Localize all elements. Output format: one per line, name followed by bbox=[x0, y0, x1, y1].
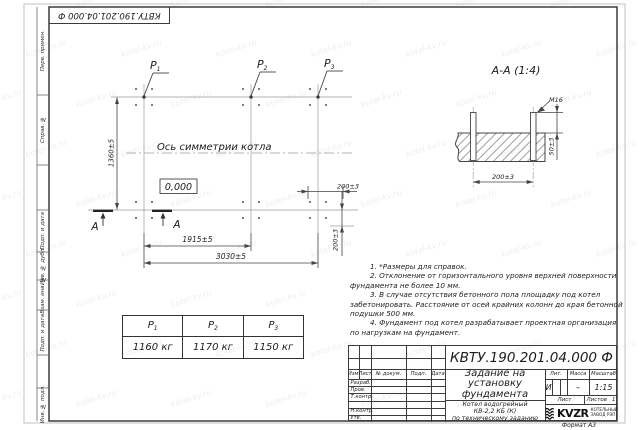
col-header-list: Лист bbox=[359, 369, 371, 379]
section-cut-letter-a-2: А bbox=[172, 219, 180, 231]
plan-dimensions bbox=[115, 98, 357, 269]
anchor-bolt-dots bbox=[135, 88, 327, 219]
dim-1915: 1915±5 bbox=[182, 235, 212, 244]
drawing-sheet: kotel-kv.rukotel-kv.rukotel-kv.rukotel-k… bbox=[0, 0, 644, 430]
logo-caption: КОТЕЛЬНЫЙ ЗАВОД РЭП bbox=[591, 408, 618, 418]
format-label: Формат А3 bbox=[548, 422, 610, 429]
sheets-label: Листов bbox=[586, 397, 607, 403]
product-line: КВ-2,2 КБ (К) bbox=[474, 408, 517, 415]
title-block: КВТУ.190.201.04.000 Ф Изм. Лист № докум.… bbox=[348, 345, 617, 421]
row-prov: Пров. bbox=[349, 386, 373, 393]
loads-value-p3: 1150 кг bbox=[243, 337, 303, 359]
margin-cell-podp-data-1: Подп. и дата bbox=[37, 210, 49, 252]
loads-value-p1: 1160 кг bbox=[123, 337, 183, 359]
loads-table-value-row: 1160 кг 1170 кг 1150 кг bbox=[123, 337, 304, 359]
col-header-data: Дата bbox=[431, 369, 445, 379]
title-block-product: Котел водогрейный КВ-2,2 КБ (К) по техни… bbox=[445, 400, 545, 422]
title-line: фундамента bbox=[462, 390, 528, 400]
plan-axes bbox=[88, 84, 358, 233]
corner-doc-number: КВТУ.190.201.04.000 Ф bbox=[58, 10, 161, 20]
coil-icon bbox=[545, 406, 555, 421]
note-line: забетонировать. Расстояние от осей крайн… bbox=[350, 300, 616, 309]
section-cut-letter-a-1: А bbox=[90, 221, 98, 233]
dim-200-bolt-spacing: 200±3 bbox=[492, 173, 514, 181]
title-block-title: Задание на установку фундамента bbox=[445, 369, 545, 400]
company-logo: KVZR КОТЕЛЬНЫЙ ЗАВОД РЭП bbox=[545, 404, 618, 422]
dim-1360: 1360±5 bbox=[108, 138, 116, 167]
p3-point-label: P3 bbox=[324, 57, 335, 71]
scale-header: Масштаб bbox=[589, 369, 618, 379]
margin-cell-podp-data-2: Подп. и дата bbox=[37, 310, 49, 355]
lit-value: И bbox=[545, 379, 552, 395]
p1-point-label: P1 bbox=[150, 59, 160, 73]
loads-header-p2: P2 bbox=[183, 316, 243, 337]
mass-header: Масса bbox=[567, 369, 589, 379]
thread-size-label: М16 bbox=[549, 96, 563, 104]
col-header-podp: Подп. bbox=[406, 369, 431, 379]
sheet-label: Лист bbox=[545, 395, 584, 404]
mass-value: – bbox=[567, 379, 589, 395]
margin-cell-sprav-n: Справ. № bbox=[37, 95, 49, 165]
section-title: А-А (1:4) bbox=[491, 64, 541, 77]
corner-stamp: КВТУ.190.201.04.000 Ф bbox=[49, 7, 170, 24]
note-line: по нагрузкам на фундамент. bbox=[350, 328, 616, 337]
col-header-izm: Изм. bbox=[349, 369, 359, 379]
row-nkontr: Н.контр. bbox=[349, 408, 373, 415]
note-line: фундамента не более 10 мм. bbox=[350, 281, 616, 290]
logo-caption-line: ЗАВОД РЭП bbox=[591, 413, 618, 418]
dim-200-vertical: 200±3 bbox=[332, 229, 340, 251]
sheets-cell: Листов 1 bbox=[584, 395, 618, 404]
loads-header-p3: P3 bbox=[243, 316, 303, 337]
loads-table: P1 P2 P3 1160 кг 1170 кг 1150 кг bbox=[122, 315, 304, 359]
logo-text: KVZR bbox=[557, 407, 588, 420]
elevation-label: 0,000 bbox=[165, 182, 192, 193]
symmetry-axis-label: Ось симметрии котла bbox=[157, 142, 272, 153]
note-line: 4. Фундамент под котел разрабатывает про… bbox=[350, 318, 616, 327]
load-point-leaders bbox=[143, 71, 343, 98]
col-header-dokum: № докум. bbox=[371, 369, 406, 379]
title-block-doc-number: КВТУ.190.201.04.000 Ф bbox=[445, 346, 618, 369]
dim-200-horizontal: 200±3 bbox=[337, 183, 359, 191]
sheets-value: 1 bbox=[612, 397, 616, 403]
note-line: 3. В случае отсутствия бетонного пола пл… bbox=[350, 290, 616, 299]
margin-cell-inv-podl: Инв. № подл. bbox=[37, 388, 49, 421]
p2-point-label: P2 bbox=[257, 58, 268, 72]
lit-header: Лит. bbox=[545, 369, 567, 379]
scale-value: 1:15 bbox=[589, 379, 618, 395]
note-line: 2. Отклонение от горизонтального уровня … bbox=[350, 271, 616, 280]
elevation-mark: 0,000 bbox=[160, 179, 197, 194]
product-line: по техническому заданию bbox=[452, 415, 538, 422]
margin-cell-perv-primen: Перв. примен. bbox=[37, 7, 49, 95]
loads-header-p1: P1 bbox=[123, 316, 183, 337]
row-utv: Утв. bbox=[349, 415, 373, 422]
product-line: Котел водогрейный bbox=[463, 401, 528, 408]
note-line: подушки 500 мм. bbox=[350, 309, 616, 318]
row-blank bbox=[349, 401, 373, 408]
dim-3030: 3030±5 bbox=[216, 252, 246, 261]
loads-value-p2: 1170 кг bbox=[183, 337, 243, 359]
margin-cell-vzam-inv: Взам. инв. № bbox=[37, 280, 49, 310]
row-tkontr: Т.контр. bbox=[349, 393, 373, 400]
dim-50-protrusion: 50±3 bbox=[548, 138, 556, 156]
row-razrab: Разраб. bbox=[349, 379, 373, 386]
notes-block: 1. *Размеры для справок. 2. Отклонение о… bbox=[350, 262, 616, 337]
section-cut-marks bbox=[93, 211, 172, 226]
loads-table-header-row: P1 P2 P3 bbox=[123, 316, 304, 337]
note-line: 1. *Размеры для справок. bbox=[350, 262, 616, 271]
